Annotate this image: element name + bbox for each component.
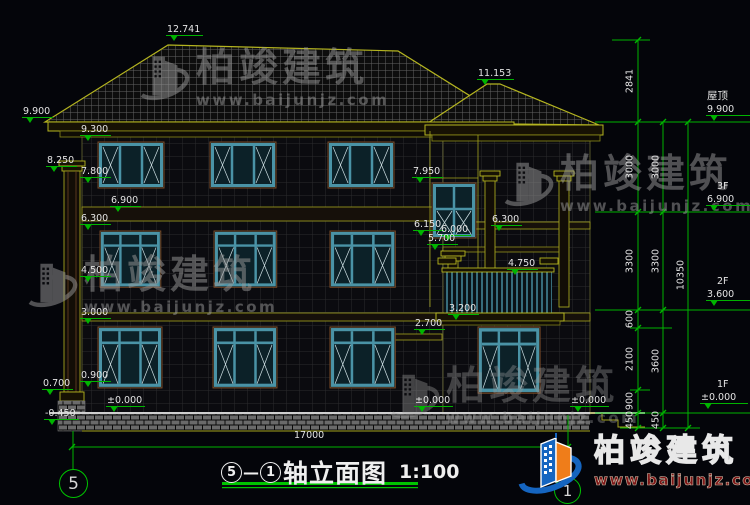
dimension-label: 3F bbox=[717, 181, 729, 192]
dimension-label: 3000 bbox=[625, 155, 636, 179]
dimension-label: 1F bbox=[717, 379, 729, 390]
dimension-label: 450 bbox=[651, 411, 662, 429]
dimension-label: 2F bbox=[717, 276, 729, 287]
dimension-label: 600 bbox=[625, 310, 636, 328]
dimension-label: 3000 bbox=[651, 155, 662, 179]
dimension-label: 屋顶 bbox=[707, 91, 728, 102]
dimension-label: 6.300 bbox=[491, 214, 522, 226]
dimension-label: 3.000 bbox=[80, 307, 111, 319]
dimension-label: -0.450 bbox=[44, 408, 79, 420]
dimension-label: 10350 bbox=[676, 260, 687, 290]
title-text: 轴立面图 bbox=[283, 454, 387, 490]
title-axis-end-bubble: 1 bbox=[260, 462, 281, 483]
dimension-label: 7.950 bbox=[412, 166, 443, 178]
dimension-label: 900 bbox=[625, 392, 636, 410]
window-2f-1 bbox=[100, 231, 161, 287]
dimension-label: 7.800 bbox=[80, 166, 111, 178]
dimension-label: 17000 bbox=[294, 430, 324, 441]
window-3f-3 bbox=[328, 142, 394, 188]
dimension-label: 5.700 bbox=[427, 233, 458, 245]
dimension-label: 3300 bbox=[625, 249, 636, 273]
title-axis-start-bubble: 5 bbox=[221, 462, 242, 483]
brand-logo: 柏竣建筑 www.baijunjz.com bbox=[516, 433, 750, 501]
brand-logo-url: www.baijunjz.com bbox=[594, 471, 750, 489]
window-3f-2 bbox=[210, 142, 276, 188]
dimension-label: 8.250 bbox=[46, 155, 77, 167]
dimension-label: 6.900 bbox=[110, 195, 141, 207]
title-dash: — bbox=[243, 463, 259, 482]
dimension-label: 9.300 bbox=[80, 124, 111, 136]
dimension-label: 2100 bbox=[625, 347, 636, 371]
window-1f-right bbox=[478, 327, 540, 393]
window-2f-2 bbox=[214, 231, 277, 287]
dimension-label: ±0.000 bbox=[106, 395, 145, 407]
dimension-label: 11.153 bbox=[477, 68, 514, 80]
window-3f-1 bbox=[98, 142, 164, 188]
window-1f-2 bbox=[213, 327, 277, 388]
elevation-drawing bbox=[0, 0, 750, 505]
dimension-label: 3.600 bbox=[706, 289, 750, 301]
left-pilaster bbox=[58, 161, 85, 431]
window-1f-3 bbox=[330, 327, 395, 388]
drawing-title: 5 — 1 轴立面图 1:100 bbox=[221, 454, 460, 490]
dimension-label: 2.700 bbox=[414, 318, 445, 330]
dimension-label: 4.750 bbox=[507, 258, 538, 270]
dimension-label: 3600 bbox=[651, 349, 662, 373]
roof bbox=[45, 45, 603, 141]
dimension-label: 3.200 bbox=[448, 303, 479, 315]
brand-logo-text: 柏竣建筑 bbox=[594, 433, 750, 469]
dimension-label: 6.300 bbox=[80, 213, 111, 225]
dimension-label: 4.500 bbox=[80, 265, 111, 277]
brand-logo-icon bbox=[516, 433, 590, 501]
title-scale: 1:100 bbox=[399, 461, 459, 483]
dimension-label: 0.900 bbox=[80, 370, 111, 382]
axis-bubble-5: 5 bbox=[59, 469, 88, 498]
dimension-label: 12.741 bbox=[166, 24, 203, 36]
cad-canvas: 柏竣建筑 www.baijunjz.com 柏竣建筑 bbox=[0, 0, 750, 505]
dimension-label: ±0.000 bbox=[570, 395, 609, 407]
dimension-label: ±0.000 bbox=[700, 392, 748, 404]
dimension-label: 9.900 bbox=[22, 106, 53, 118]
window-2f-3 bbox=[330, 231, 395, 287]
ground bbox=[50, 413, 645, 431]
dimension-label: 9.900 bbox=[706, 104, 750, 116]
dimension-label: 2841 bbox=[625, 69, 636, 93]
dimension-label: ±0.000 bbox=[414, 395, 453, 407]
dimension-label: 6.900 bbox=[706, 194, 750, 206]
dimension-label: 450 bbox=[625, 411, 636, 429]
dimension-label: 3300 bbox=[651, 249, 662, 273]
dimension-label: 0.700 bbox=[42, 378, 73, 390]
